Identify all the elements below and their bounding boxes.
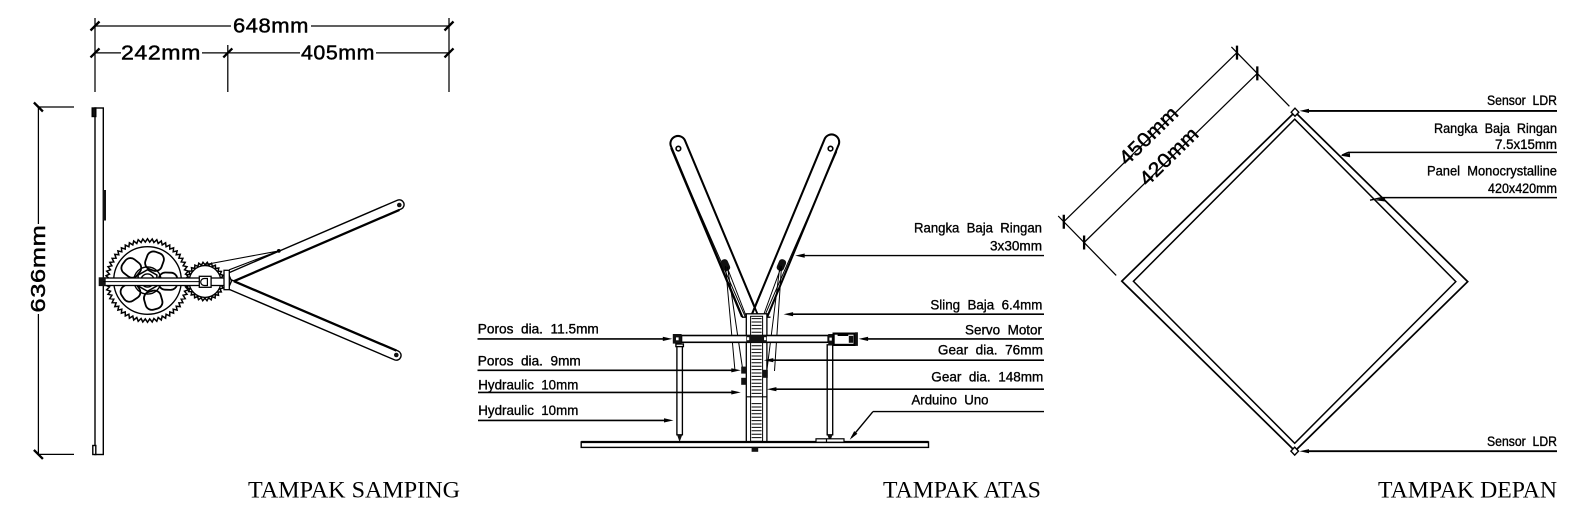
svg-text:Hydraulic 10mm: Hydraulic 10mm	[478, 377, 578, 393]
svg-text:420x420mm: 420x420mm	[1488, 180, 1557, 196]
svg-text:Panel Monocrystalline: Panel Monocrystalline	[1427, 163, 1557, 179]
svg-text:TAMPAK DEPAN: TAMPAK DEPAN	[1378, 478, 1557, 503]
svg-text:Hydraulic 10mm: Hydraulic 10mm	[478, 402, 578, 418]
svg-text:648mm: 648mm	[233, 16, 309, 38]
svg-text:Gear dia. 148mm: Gear dia. 148mm	[931, 369, 1043, 385]
svg-text:636mm: 636mm	[28, 225, 50, 313]
svg-text:TAMPAK SAMPING: TAMPAK SAMPING	[248, 478, 460, 503]
svg-text:405mm: 405mm	[301, 42, 375, 64]
svg-text:Arduino Uno: Arduino Uno	[912, 392, 989, 408]
svg-text:Poros dia. 9mm: Poros dia. 9mm	[478, 353, 581, 369]
svg-text:242mm: 242mm	[121, 42, 201, 64]
svg-text:TAMPAK ATAS: TAMPAK ATAS	[883, 478, 1041, 503]
svg-text:7.5x15mm: 7.5x15mm	[1495, 136, 1557, 152]
svg-text:Sling Baja 6.4mm: Sling Baja 6.4mm	[930, 297, 1042, 313]
svg-text:Servo Motor: Servo Motor	[965, 322, 1042, 338]
svg-text:Sensor LDR: Sensor LDR	[1487, 433, 1557, 449]
svg-text:Rangka Baja Ringan: Rangka Baja Ringan	[1434, 120, 1557, 136]
svg-text:Gear dia. 76mm: Gear dia. 76mm	[938, 342, 1043, 358]
svg-text:Poros dia. 11.5mm: Poros dia. 11.5mm	[478, 321, 599, 337]
svg-text:Sensor LDR: Sensor LDR	[1487, 92, 1557, 108]
svg-text:3x30mm: 3x30mm	[990, 238, 1042, 254]
svg-text:Rangka Baja Ringan: Rangka Baja Ringan	[914, 219, 1042, 235]
